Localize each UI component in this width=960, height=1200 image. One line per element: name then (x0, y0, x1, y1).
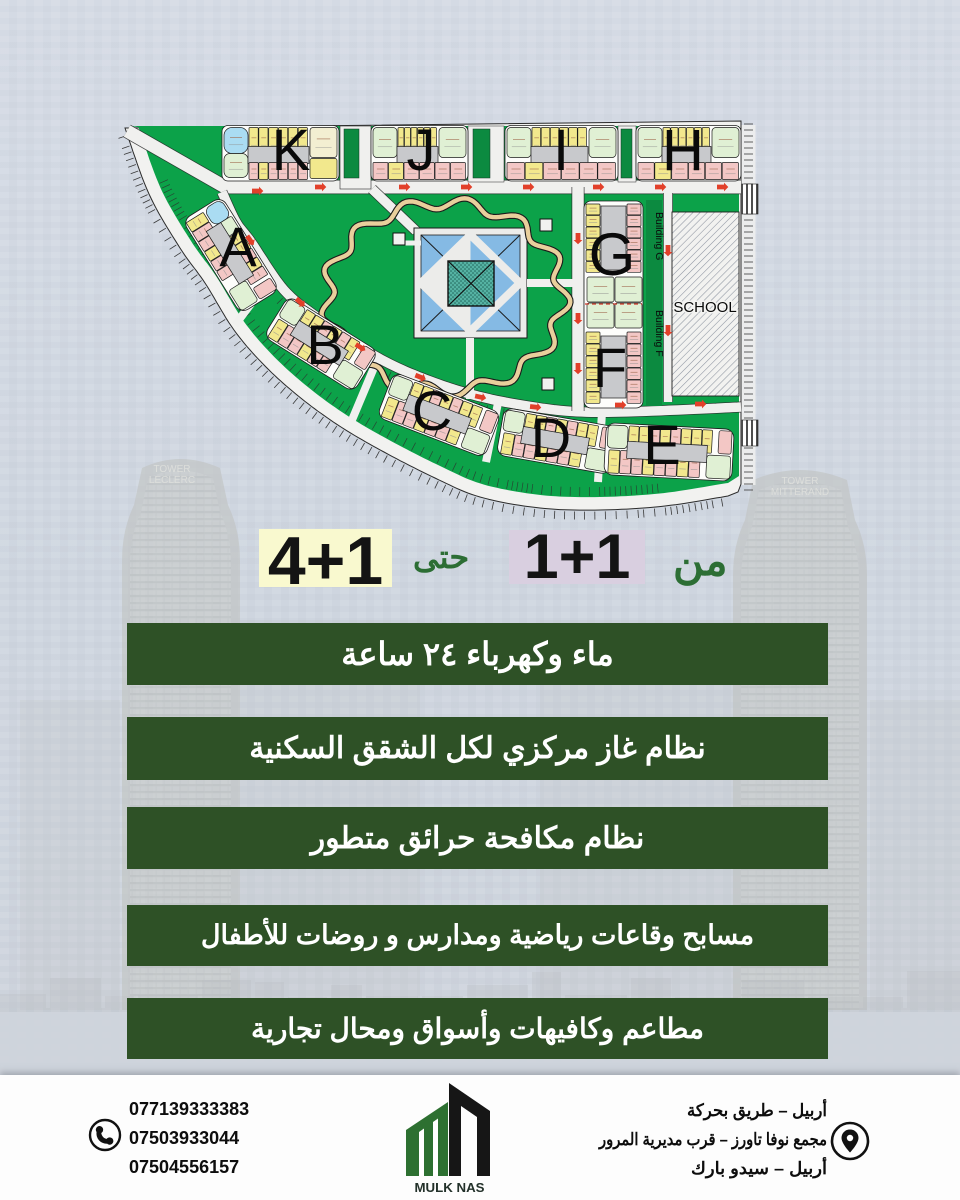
svg-text:أربيل – طريق بحركة: أربيل – طريق بحركة (687, 1098, 827, 1121)
svg-text:Building G: Building G (653, 212, 665, 260)
svg-text:MITTERAND: MITTERAND (771, 487, 829, 498)
svg-text:H: H (662, 118, 704, 183)
svg-text:A: A (219, 215, 257, 278)
svg-text:مجمع نوفا تاورز – قرب مديرية ا: مجمع نوفا تاورز – قرب مديرية المرور (597, 1130, 827, 1150)
svg-text:أربيل – سيدو بارك: أربيل – سيدو بارك (691, 1156, 827, 1179)
svg-text:SCHOOL: SCHOOL (673, 299, 736, 316)
svg-text:G: G (589, 221, 636, 288)
svg-text:D: D (531, 406, 571, 469)
svg-text:C: C (412, 379, 452, 442)
svg-text:Building F: Building F (653, 310, 665, 357)
svg-text:MULK NAS: MULK NAS (415, 1181, 485, 1195)
svg-text:J: J (407, 118, 436, 183)
svg-text:K: K (272, 118, 311, 183)
svg-text:TOWER: TOWER (781, 476, 818, 487)
svg-text:E: E (643, 413, 680, 476)
svg-text:B: B (306, 313, 343, 376)
svg-text:LECLERC: LECLERC (149, 475, 195, 486)
svg-text:I: I (553, 118, 569, 183)
svg-text:TOWER: TOWER (153, 464, 190, 475)
svg-text:F: F (593, 336, 627, 399)
